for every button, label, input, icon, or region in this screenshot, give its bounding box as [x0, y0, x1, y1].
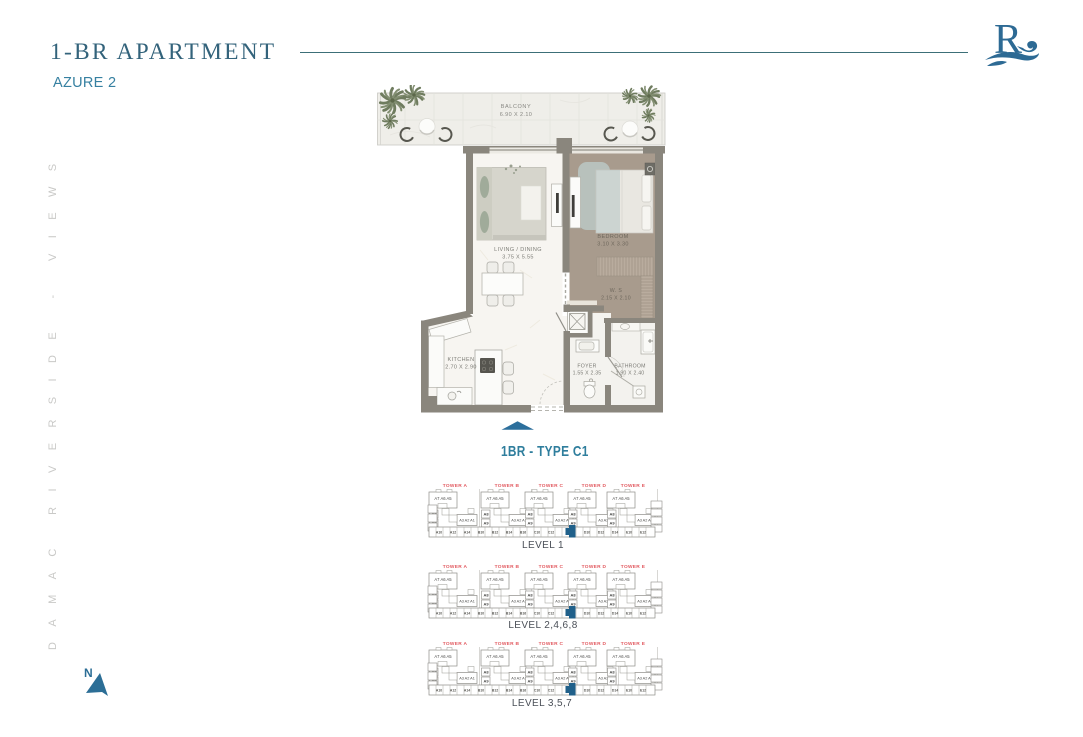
svg-text:BALCONY: BALCONY — [501, 104, 532, 110]
svg-text:BATHROOM: BATHROOM — [614, 364, 645, 370]
svg-text:3.75 X 5.55: 3.75 X 5.55 — [502, 255, 533, 261]
svg-text:1.55 X 2.35: 1.55 X 2.35 — [573, 371, 602, 377]
svg-text:LIVING / DINING: LIVING / DINING — [494, 247, 542, 253]
svg-text:2.15 X 2.10: 2.15 X 2.10 — [601, 296, 631, 302]
svg-text:KITCHEN: KITCHEN — [448, 357, 475, 363]
svg-text:2.70 X 2.90: 2.70 X 2.90 — [445, 365, 476, 371]
svg-text:6.90 X 2.10: 6.90 X 2.10 — [500, 112, 533, 118]
svg-text:3.10 X 3.30: 3.10 X 3.30 — [597, 242, 628, 248]
svg-text:BEDROOM: BEDROOM — [597, 234, 628, 240]
svg-text:W. S: W. S — [610, 288, 623, 294]
svg-text:N: N — [84, 666, 93, 680]
svg-text:FOYER: FOYER — [577, 364, 596, 370]
